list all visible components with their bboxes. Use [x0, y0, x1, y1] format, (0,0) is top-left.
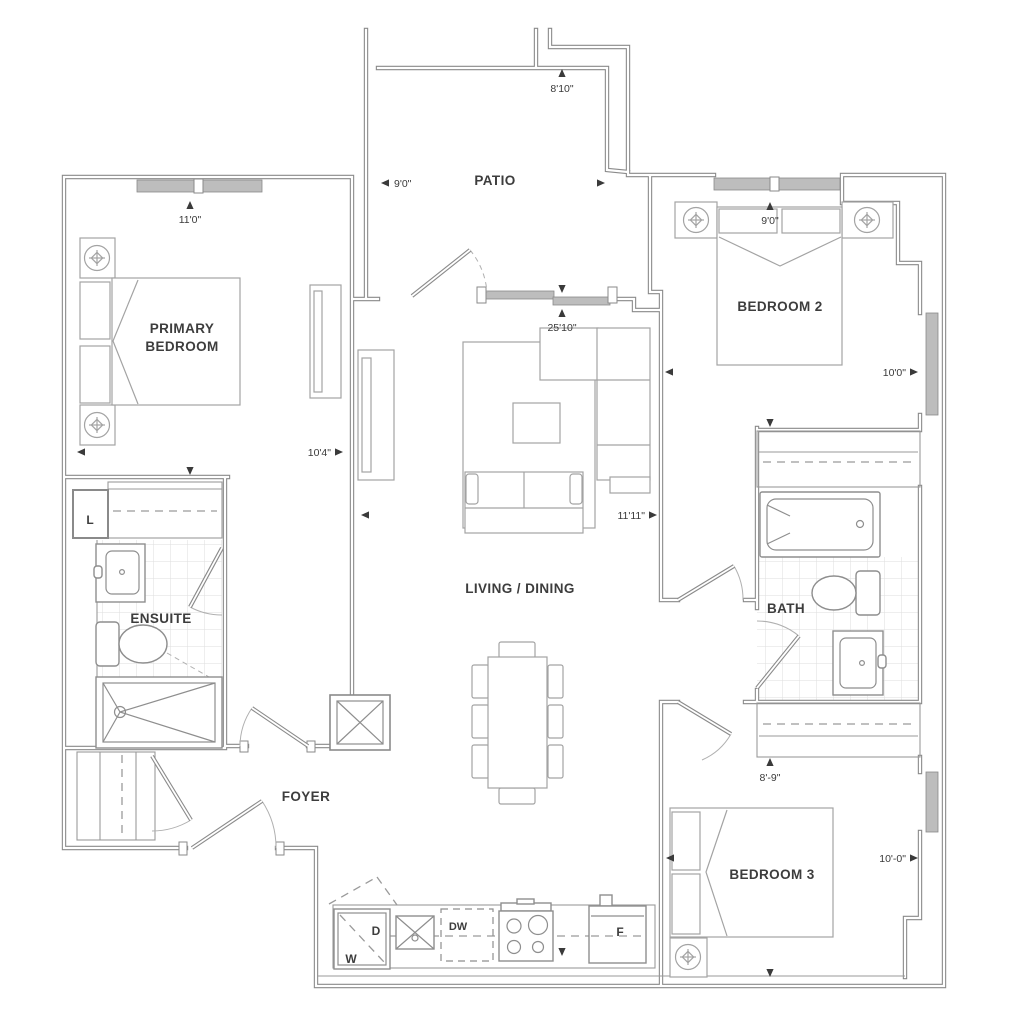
linen-label: L [86, 513, 93, 527]
arrow-left [381, 179, 389, 186]
fridge-label: F [616, 925, 623, 939]
dishwasher [441, 909, 493, 961]
washer-label: W [345, 952, 357, 966]
patio-width-dim: 9'0" [394, 178, 412, 190]
arrow-right [649, 511, 657, 518]
primary-bedroom-label-line1: PRIMARY [150, 321, 215, 336]
arrow-left [361, 511, 369, 518]
patio-label: PATIO [474, 173, 515, 188]
bath-vanity-sink [833, 631, 886, 695]
living-depth-dim: 25'10" [547, 322, 576, 334]
pillow [672, 874, 700, 934]
foyer-closet [77, 752, 155, 840]
bedroom3-door [678, 702, 731, 760]
dresser [310, 285, 341, 398]
ensuite-vanity-sink [94, 544, 145, 602]
arrow-up [558, 309, 565, 317]
patio-depth-dim: 8'10" [550, 83, 574, 95]
primary-closet [108, 482, 222, 538]
bedroom2-furniture [675, 202, 893, 365]
arrow-up [186, 201, 193, 209]
living-dining-furniture [358, 328, 650, 804]
arrow-down [558, 285, 565, 293]
bath-label: BATH [767, 601, 805, 616]
entry-door [179, 801, 284, 855]
bedroom3-furniture [670, 808, 833, 977]
bathtub [760, 492, 880, 557]
shower [96, 677, 222, 748]
bedroom3-depth-dim: 8'-9" [760, 772, 781, 784]
bedroom2-depth-dim: 9'0" [761, 215, 779, 227]
floor-plan: 8'10" 9'0" 11'0" 10'4" 9'0" 10'0" 25'10"… [0, 0, 1024, 1036]
kitchen-sink [396, 916, 434, 949]
bedroom2-width-dim: 10'0" [883, 367, 907, 379]
arrow-right [910, 368, 918, 375]
patio-swing-door [412, 250, 487, 296]
pillow [80, 282, 110, 339]
bedroom2-window-mullion [770, 177, 779, 191]
living-width-dim: 11'11" [617, 510, 645, 522]
sofa [465, 472, 583, 533]
arrow-right [597, 179, 605, 186]
arrow-right [335, 448, 343, 455]
washer-dryer-unit [329, 877, 397, 969]
primary-suite-door [240, 708, 315, 752]
arrow-right [910, 854, 918, 861]
bedroom2-side-window [926, 313, 938, 415]
floor-plan-page: 8'10" 9'0" 11'0" 10'4" 9'0" 10'0" 25'10"… [0, 0, 1024, 1036]
ensuite-toilet [96, 622, 167, 666]
arrow-down [766, 419, 773, 427]
ensuite-label: ENSUITE [130, 611, 191, 626]
bifold-doors-dashed [329, 877, 397, 905]
pillow [672, 812, 700, 870]
arrow-up [766, 758, 773, 766]
tv-console [358, 350, 394, 480]
bedroom3-side-window [926, 772, 938, 832]
patio-sliding-door [477, 287, 617, 305]
bedroom2-label: BEDROOM 2 [737, 299, 822, 314]
primary-depth-dim: 11'0" [179, 214, 202, 226]
cooktop [499, 899, 553, 961]
dryer-label: D [372, 924, 381, 938]
arrow-left [665, 368, 673, 375]
bedroom3-closet [757, 703, 920, 757]
living-dining-label: LIVING / DINING [465, 581, 575, 596]
primary-window-mullion [194, 179, 203, 193]
arrow-up [766, 202, 773, 210]
bedroom3-width-dim: 10'-0" [879, 853, 906, 865]
pillow [782, 209, 840, 233]
arrow-left [77, 448, 85, 455]
foyer-label: FOYER [282, 789, 331, 804]
arrow-down [558, 948, 565, 956]
bedroom2-door [678, 566, 743, 600]
dining-table-set [472, 642, 563, 804]
bedroom2-closet [757, 431, 920, 487]
arrow-down [186, 467, 193, 475]
kitchen [329, 877, 655, 969]
primary-width-dim: 10'4" [308, 447, 332, 459]
structural-column [330, 695, 390, 750]
coffee-table [513, 403, 560, 443]
primary-bedroom-label-line2: BEDROOM [145, 339, 218, 354]
bedroom3-label: BEDROOM 3 [729, 867, 814, 882]
pillow [80, 346, 110, 403]
foyer-closet-door [152, 756, 191, 831]
dishwasher-label: DW [449, 921, 468, 933]
